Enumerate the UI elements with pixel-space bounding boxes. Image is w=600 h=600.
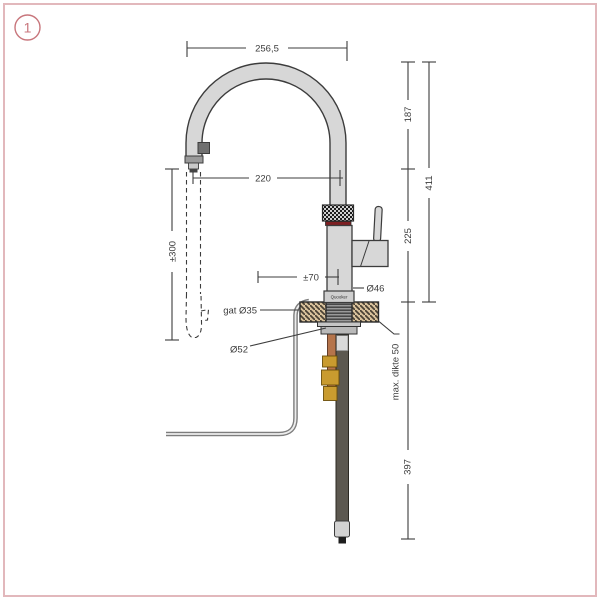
label-flange-diameter: Ø52 [230, 345, 248, 356]
flexible-hose [166, 301, 309, 434]
leader-max-thickness [379, 322, 400, 335]
tube-end-cap [335, 521, 350, 537]
pullout-spout-dashed [186, 172, 209, 338]
lever-rod [373, 206, 382, 241]
faucet-dimension-diagram: 1 [0, 0, 600, 600]
label-max-thickness: max. dikte 50 [391, 344, 402, 401]
label-arc-width: 256,5 [255, 44, 279, 55]
leader-flange [250, 328, 326, 346]
spout-clip [198, 143, 210, 154]
label-total-height: 411 [424, 175, 435, 190]
figure-badge: 1 [15, 15, 40, 40]
faucet: Quooker [185, 63, 388, 303]
brass-fittings [322, 356, 340, 401]
label-spout-reach: 220 [255, 174, 271, 185]
tail-tube [336, 335, 349, 522]
countertop [300, 302, 379, 334]
handle-base [352, 241, 388, 267]
label-body-diameter: Ø46 [367, 284, 385, 295]
label-arc-to-spout: 187 [403, 107, 414, 123]
page-border [4, 4, 596, 596]
label-below-counter: 397 [403, 459, 414, 475]
label-pullout-extension: ±300 [168, 241, 179, 262]
label-spout-to-counter: 225 [403, 228, 414, 244]
countertop-right [352, 302, 379, 322]
label-hole: gat Ø35 [223, 306, 257, 317]
knurled-ring [323, 205, 354, 221]
faucet-arch [186, 63, 346, 207]
mounting-nut [321, 327, 357, 335]
spout-nozzle [189, 163, 199, 169]
under-counter-assembly [322, 333, 350, 544]
spout-head [185, 156, 203, 163]
threaded-shank [326, 302, 352, 322]
spout-nozzle-tip [190, 169, 198, 173]
dim-heights-inner-line [401, 62, 415, 302]
figure-number: 1 [24, 20, 32, 36]
tube-end-nub [339, 537, 347, 544]
mounting-washer [318, 322, 361, 327]
tail-tube-collar [337, 336, 348, 351]
faucet-body [327, 226, 352, 292]
countertop-left [300, 302, 326, 322]
dim-below-counter-line [401, 302, 415, 539]
technical-drawing-page: 1 [0, 0, 600, 600]
brand-label: Quooker [331, 295, 348, 300]
label-handle-offset: ±70 [303, 273, 319, 284]
